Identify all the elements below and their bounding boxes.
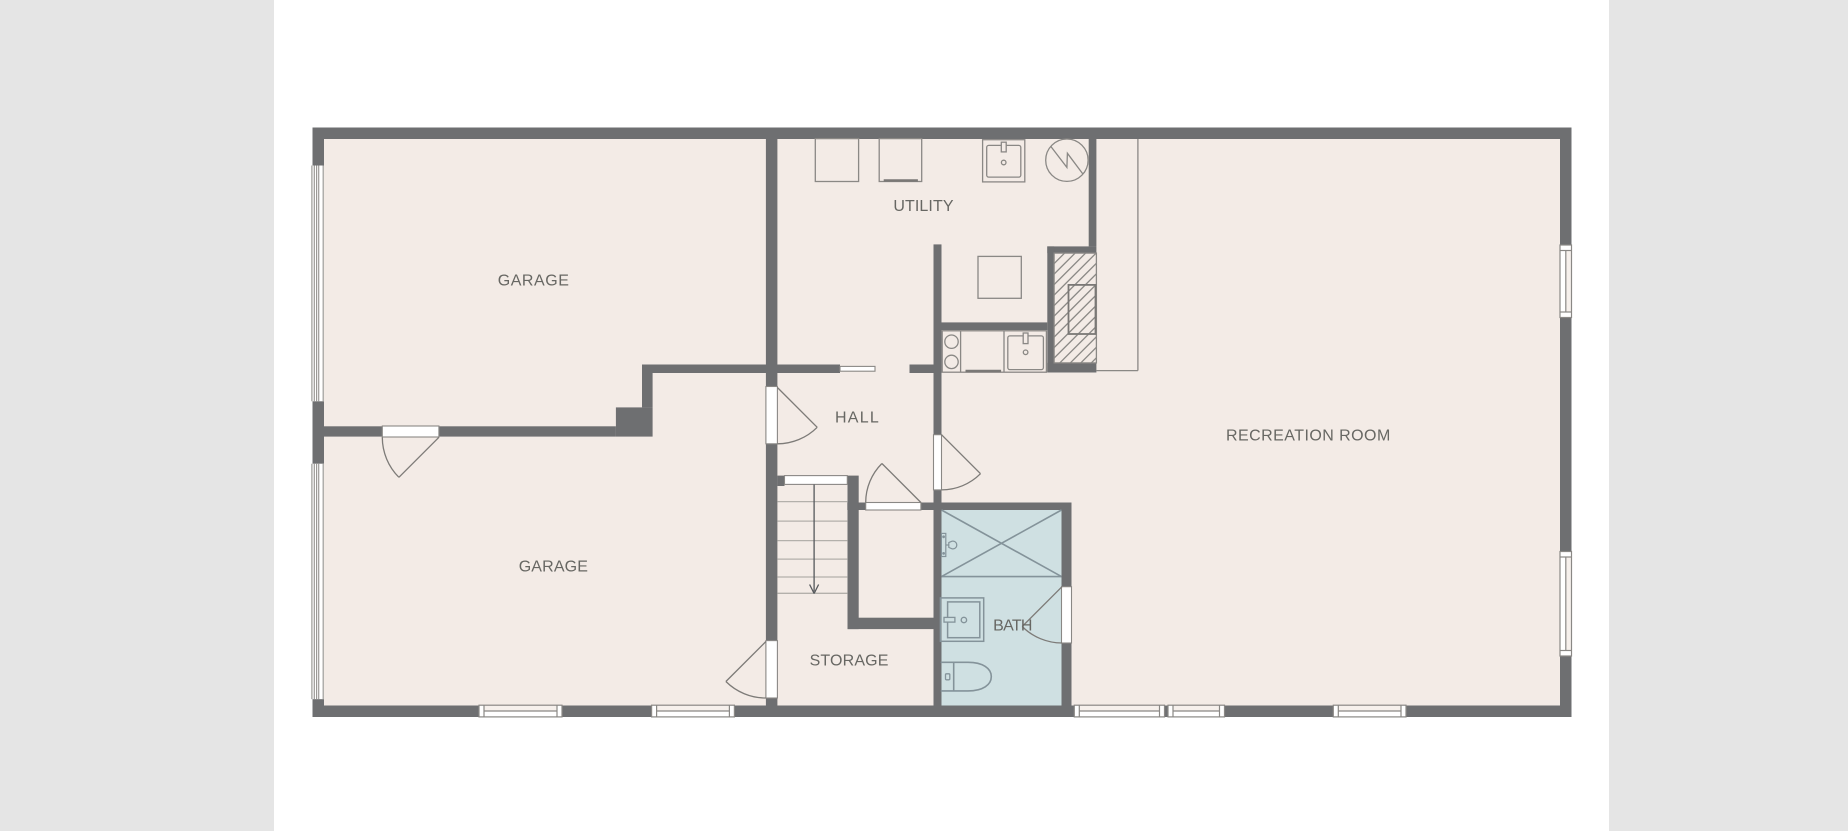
svg-text:HALL: HALL — [835, 410, 880, 427]
svg-text:GARAGE: GARAGE — [498, 273, 570, 290]
svg-text:UTILITY: UTILITY — [893, 198, 953, 215]
svg-text:GARAGE: GARAGE — [519, 559, 588, 576]
svg-text:STORAGE: STORAGE — [810, 653, 889, 670]
svg-text:RECREATION ROOM: RECREATION ROOM — [1226, 428, 1391, 445]
svg-text:BATH: BATH — [993, 617, 1032, 634]
